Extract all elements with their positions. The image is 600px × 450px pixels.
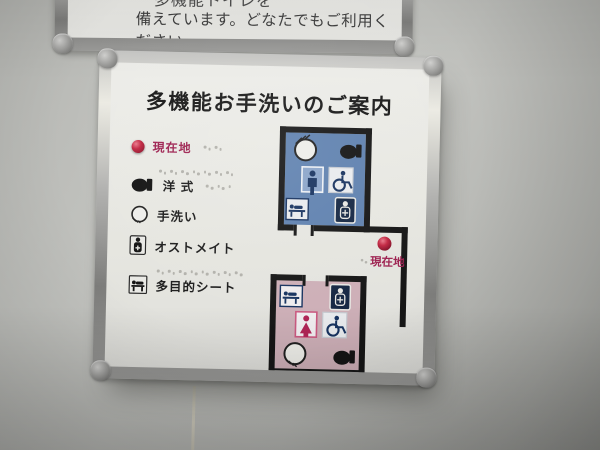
legend-item-western-toilet: 洋 式	[131, 175, 267, 197]
hanging-cable	[191, 386, 196, 450]
current-location-dot-icon	[377, 237, 391, 251]
map-current-location: 現在地	[361, 236, 406, 269]
frame-corner-cap	[394, 36, 414, 56]
western-toilet-icon	[333, 350, 355, 365]
wheelchair-icon	[322, 312, 347, 338]
womens-room	[268, 274, 366, 373]
legend-item-current-location: 現在地	[131, 137, 267, 158]
braille-row	[159, 163, 267, 170]
legend-label-current-location: 現在地	[152, 138, 191, 156]
frame-corner-cap	[52, 33, 72, 53]
legend-item-multipurpose-sheet: 多目的シート	[128, 275, 264, 297]
braille-row	[157, 263, 265, 270]
braille-dots	[206, 177, 233, 196]
sign-title: 多機能お手洗いのご案内	[110, 84, 429, 121]
woman-icon	[295, 312, 317, 337]
upper-sign-text: 備えています。どなたでもご利用ください。	[136, 7, 402, 40]
legend-label-multipurpose-sheet: 多目的シート	[155, 275, 236, 296]
ostomate-icon	[129, 235, 146, 255]
current-location-dot-icon	[131, 139, 144, 152]
multipurpose-sheet-icon	[286, 198, 308, 219]
ostomate-icon	[330, 284, 351, 309]
frame-corner-cap	[423, 56, 443, 76]
legend-label-hand-wash: 手洗い	[157, 206, 198, 226]
western-toilet-icon	[340, 144, 362, 159]
upper-sign-frame: 多機能トイレを 備えています。どなたでもご利用ください。	[55, 0, 414, 54]
photo-scene: 多機能トイレを 備えています。どなたでもご利用ください。 多機能お手洗いのご案内…	[0, 0, 600, 450]
legend-label-western-toilet: 洋 式	[163, 176, 195, 196]
hand-wash-basin-icon	[130, 205, 149, 224]
ostomate-icon	[335, 198, 356, 223]
map-current-location-label: 現在地	[370, 254, 405, 269]
frame-corner-cap	[90, 360, 110, 380]
legend-item-ostomate: オストメイト	[129, 235, 265, 258]
mens-room	[278, 126, 372, 237]
restroom-guide-sign-frame: 多機能お手洗いのご案内 現在地 洋 式	[92, 50, 441, 386]
legend: 現在地 洋 式	[128, 137, 268, 308]
braille-dots	[203, 139, 226, 158]
man-icon	[302, 167, 324, 195]
wheelchair-icon	[329, 167, 354, 193]
multipurpose-sheet-icon	[280, 285, 302, 306]
legend-label-ostomate: オストメイト	[154, 236, 235, 257]
legend-item-hand-wash: 手洗い	[130, 205, 266, 227]
frame-corner-cap	[97, 48, 117, 68]
western-toilet-icon	[131, 177, 155, 193]
sign-panel: 多機能お手洗いのご案内 現在地 洋 式	[105, 62, 430, 373]
multipurpose-sheet-icon	[128, 275, 147, 294]
floor-map: 現在地	[264, 122, 422, 374]
frame-corner-cap	[416, 367, 436, 387]
upper-sign-panel: 多機能トイレを 備えています。どなたでもご利用ください。	[68, 0, 403, 40]
